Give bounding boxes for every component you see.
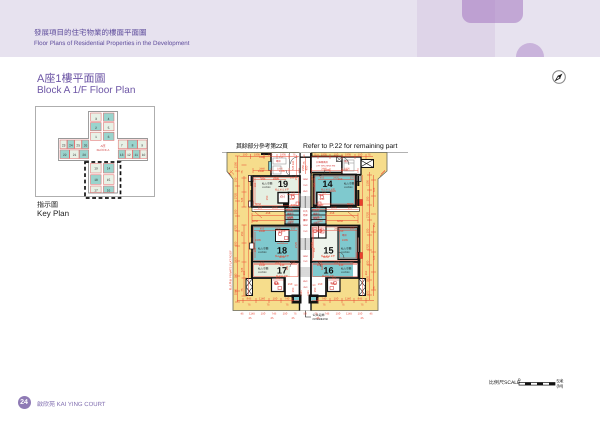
svg-text:458: 458 bbox=[330, 211, 335, 215]
svg-text:16: 16 bbox=[107, 189, 111, 193]
svg-text:150: 150 bbox=[313, 182, 316, 187]
svg-text:725: 725 bbox=[372, 255, 376, 260]
svg-text:浴室: 浴室 bbox=[330, 281, 335, 285]
svg-text:150: 150 bbox=[348, 207, 353, 210]
svg-text:725: 725 bbox=[372, 187, 376, 192]
svg-text:2725: 2725 bbox=[366, 275, 370, 282]
svg-text:150: 150 bbox=[366, 290, 370, 295]
svg-text:浴室: 浴室 bbox=[274, 281, 279, 285]
svg-text:LIV/DIN: LIV/DIN bbox=[344, 186, 353, 189]
svg-text:22: 22 bbox=[63, 153, 67, 157]
svg-text:電錶房: 電錶房 bbox=[313, 212, 320, 215]
svg-text:1: 1 bbox=[95, 135, 97, 139]
svg-text:LIV/DIN: LIV/DIN bbox=[262, 186, 271, 189]
svg-text:17: 17 bbox=[94, 189, 98, 193]
svg-text:150: 150 bbox=[303, 184, 308, 187]
svg-text:13: 13 bbox=[120, 153, 124, 157]
svg-text:1905: 1905 bbox=[345, 153, 352, 157]
svg-text:450: 450 bbox=[305, 165, 309, 170]
svg-text:電錶房: 電錶房 bbox=[287, 212, 294, 215]
svg-text:私人平台 PRIVATE FLAT ROOF: 私人平台 PRIVATE FLAT ROOF bbox=[229, 250, 233, 290]
svg-text:845: 845 bbox=[358, 297, 363, 301]
svg-text:455: 455 bbox=[260, 228, 265, 231]
svg-text:25: 25 bbox=[270, 316, 274, 320]
svg-text:1850: 1850 bbox=[303, 178, 309, 181]
svg-text:725: 725 bbox=[240, 197, 244, 202]
svg-text:(M): (M) bbox=[557, 384, 564, 389]
svg-text:8: 8 bbox=[132, 144, 134, 148]
svg-text:25: 25 bbox=[76, 144, 80, 148]
svg-text:150: 150 bbox=[294, 175, 298, 180]
svg-text:725: 725 bbox=[280, 241, 285, 244]
svg-text:75: 75 bbox=[302, 161, 306, 165]
svg-text:450: 450 bbox=[303, 286, 308, 289]
svg-text:740: 740 bbox=[285, 297, 290, 301]
svg-text:2725: 2725 bbox=[294, 241, 298, 248]
svg-text:25: 25 bbox=[360, 316, 364, 320]
svg-text:LIV/DIN: LIV/DIN bbox=[258, 251, 267, 254]
svg-text:150: 150 bbox=[254, 182, 257, 187]
svg-text:150: 150 bbox=[372, 222, 376, 227]
svg-text:458: 458 bbox=[266, 211, 271, 215]
svg-text:1905: 1905 bbox=[321, 153, 328, 157]
svg-text:150: 150 bbox=[261, 312, 266, 316]
svg-text:150: 150 bbox=[366, 196, 370, 201]
svg-text:走廊: 走廊 bbox=[303, 213, 308, 217]
svg-text:455: 455 bbox=[260, 177, 265, 180]
svg-text:Refer to P.22 for remaining pa: Refer to P.22 for remaining part bbox=[303, 143, 397, 150]
svg-text:2150: 2150 bbox=[366, 179, 370, 186]
svg-text:450: 450 bbox=[243, 270, 246, 275]
svg-text:25: 25 bbox=[291, 316, 295, 320]
svg-text:1905: 1905 bbox=[342, 238, 349, 242]
svg-text:1850: 1850 bbox=[303, 224, 309, 227]
svg-text:私1,452.8平: 私1,452.8平 bbox=[321, 254, 335, 258]
svg-text:75: 75 bbox=[313, 153, 317, 157]
svg-text:12: 12 bbox=[127, 153, 131, 157]
svg-text:75: 75 bbox=[247, 302, 251, 306]
svg-text:2725: 2725 bbox=[234, 224, 238, 231]
svg-text:1905: 1905 bbox=[272, 207, 278, 210]
svg-text:150: 150 bbox=[283, 312, 288, 316]
svg-text:2725: 2725 bbox=[366, 243, 370, 250]
svg-text:睡房: 睡房 bbox=[276, 159, 281, 163]
svg-text:升降機機房: 升降機機房 bbox=[316, 160, 329, 164]
svg-text:15: 15 bbox=[323, 246, 333, 256]
svg-text:2440: 2440 bbox=[321, 168, 327, 171]
svg-text:150: 150 bbox=[358, 153, 363, 157]
svg-text:26: 26 bbox=[84, 144, 88, 148]
svg-text:455: 455 bbox=[320, 177, 325, 180]
svg-text:1145: 1145 bbox=[346, 312, 352, 316]
svg-text:150: 150 bbox=[350, 177, 355, 180]
svg-text:2425: 2425 bbox=[334, 262, 340, 265]
svg-text:14: 14 bbox=[322, 179, 333, 189]
svg-text:BLOCK A: BLOCK A bbox=[97, 148, 110, 152]
svg-text:水錶房: 水錶房 bbox=[286, 215, 294, 219]
svg-text:455: 455 bbox=[260, 262, 265, 265]
svg-text:其餘部分參考第22頁: 其餘部分參考第22頁 bbox=[236, 142, 288, 150]
svg-text:150: 150 bbox=[350, 228, 355, 231]
svg-text:2425: 2425 bbox=[333, 177, 339, 180]
svg-text:450: 450 bbox=[365, 270, 368, 275]
svg-text:75: 75 bbox=[240, 288, 244, 292]
svg-text:150: 150 bbox=[288, 282, 293, 286]
svg-text:7: 7 bbox=[121, 144, 123, 148]
svg-text:1905: 1905 bbox=[277, 168, 283, 171]
svg-text:1140: 1140 bbox=[345, 297, 351, 301]
svg-text:20: 20 bbox=[82, 153, 86, 157]
svg-text:1145: 1145 bbox=[300, 290, 303, 296]
svg-text:150: 150 bbox=[279, 156, 284, 159]
svg-text:150: 150 bbox=[366, 228, 370, 233]
svg-text:150: 150 bbox=[313, 247, 316, 252]
svg-text:6: 6 bbox=[108, 135, 110, 139]
svg-text:75: 75 bbox=[360, 302, 364, 306]
svg-text:0: 0 bbox=[518, 378, 521, 383]
svg-text:5650: 5650 bbox=[252, 219, 259, 223]
svg-text:23: 23 bbox=[62, 144, 66, 148]
svg-text:2425: 2425 bbox=[334, 228, 340, 231]
svg-text:845: 845 bbox=[247, 297, 252, 301]
svg-text:2440: 2440 bbox=[259, 168, 265, 171]
svg-text:850: 850 bbox=[303, 190, 308, 193]
svg-text:浴室: 浴室 bbox=[290, 193, 295, 197]
svg-text:2: 2 bbox=[95, 126, 97, 130]
svg-text:浴室: 浴室 bbox=[319, 193, 324, 197]
svg-text:75: 75 bbox=[292, 153, 296, 157]
svg-text:1160: 1160 bbox=[288, 220, 294, 223]
svg-text:11: 11 bbox=[135, 153, 139, 157]
svg-text:150: 150 bbox=[303, 230, 308, 233]
svg-text:2425: 2425 bbox=[275, 262, 281, 265]
svg-text:455: 455 bbox=[318, 228, 323, 231]
svg-text:樓梯: 樓梯 bbox=[303, 218, 308, 222]
svg-text:25: 25 bbox=[248, 316, 252, 320]
svg-text:75: 75 bbox=[372, 286, 376, 290]
svg-text:940: 940 bbox=[290, 197, 295, 201]
svg-text:水錶房: 水錶房 bbox=[312, 215, 320, 219]
svg-text:LIV/DIN: LIV/DIN bbox=[258, 271, 267, 274]
svg-text:150: 150 bbox=[290, 177, 295, 180]
svg-text:75: 75 bbox=[341, 302, 345, 306]
svg-text:入口: 入口 bbox=[280, 195, 285, 198]
svg-text:45: 45 bbox=[240, 312, 244, 316]
svg-text:75: 75 bbox=[322, 302, 326, 306]
svg-text:公共: 公共 bbox=[303, 210, 308, 213]
svg-text:1980: 1980 bbox=[259, 156, 265, 159]
svg-text:150: 150 bbox=[366, 260, 370, 265]
svg-text:10: 10 bbox=[142, 153, 146, 157]
svg-text:1905: 1905 bbox=[331, 207, 337, 210]
svg-text:2725: 2725 bbox=[234, 192, 238, 199]
svg-text:私950.2平: 私950.2平 bbox=[276, 274, 288, 278]
svg-text:150: 150 bbox=[291, 228, 296, 231]
svg-text:940: 940 bbox=[292, 160, 295, 165]
svg-text:CORRIDOR: CORRIDOR bbox=[313, 317, 328, 321]
svg-text:私1,452.8平: 私1,452.8平 bbox=[321, 188, 335, 192]
svg-text:1905: 1905 bbox=[255, 238, 262, 242]
svg-text:18: 18 bbox=[277, 246, 287, 256]
svg-text:150: 150 bbox=[273, 297, 278, 301]
svg-text:1160: 1160 bbox=[317, 220, 323, 223]
svg-text:150: 150 bbox=[291, 287, 295, 292]
svg-text:150: 150 bbox=[313, 287, 317, 292]
svg-text:1980: 1980 bbox=[234, 288, 238, 295]
svg-text:3: 3 bbox=[95, 117, 97, 121]
svg-text:150: 150 bbox=[234, 177, 238, 182]
svg-text:電錶房: 電錶房 bbox=[312, 208, 320, 212]
svg-text:1145: 1145 bbox=[307, 290, 310, 296]
svg-text:21: 21 bbox=[73, 153, 77, 157]
svg-text:睡房: 睡房 bbox=[342, 233, 347, 237]
svg-text:2725: 2725 bbox=[234, 256, 238, 263]
svg-text:150: 150 bbox=[258, 207, 263, 210]
svg-text:15: 15 bbox=[107, 178, 111, 182]
svg-text:24: 24 bbox=[69, 144, 73, 148]
svg-text:150: 150 bbox=[240, 231, 244, 236]
svg-text:LIV/DIN: LIV/DIN bbox=[341, 271, 350, 274]
svg-text:14: 14 bbox=[107, 167, 111, 171]
svg-text:150: 150 bbox=[310, 175, 314, 180]
svg-text:150: 150 bbox=[334, 297, 339, 301]
svg-text:940: 940 bbox=[321, 265, 324, 270]
svg-text:50: 50 bbox=[303, 312, 307, 316]
svg-text:740: 740 bbox=[322, 297, 327, 301]
svg-text:150: 150 bbox=[265, 195, 269, 200]
svg-text:150: 150 bbox=[303, 260, 308, 263]
svg-text:電錶房: 電錶房 bbox=[286, 208, 294, 212]
svg-text:私950.2平: 私950.2平 bbox=[322, 274, 334, 278]
svg-text:25: 25 bbox=[316, 316, 320, 320]
svg-text:1850: 1850 bbox=[303, 255, 309, 258]
svg-text:5: 5 bbox=[108, 126, 110, 130]
svg-text:4: 4 bbox=[108, 117, 110, 121]
svg-text:150: 150 bbox=[268, 153, 273, 157]
svg-text:私1,452.8平: 私1,452.8平 bbox=[275, 254, 289, 258]
svg-text:1140: 1140 bbox=[259, 297, 265, 301]
svg-text:75: 75 bbox=[266, 302, 270, 306]
svg-text:150: 150 bbox=[318, 282, 323, 286]
svg-text:150: 150 bbox=[234, 273, 238, 278]
svg-text:25: 25 bbox=[338, 316, 342, 320]
svg-text:1905: 1905 bbox=[344, 168, 350, 171]
svg-text:2425: 2425 bbox=[273, 177, 279, 180]
svg-text:5650: 5650 bbox=[337, 219, 344, 223]
svg-text:2725: 2725 bbox=[366, 211, 370, 218]
svg-text:940: 940 bbox=[286, 265, 289, 270]
svg-text:75: 75 bbox=[240, 170, 244, 174]
svg-text:745: 745 bbox=[325, 312, 330, 316]
svg-text:浴室: 浴室 bbox=[278, 230, 283, 234]
svg-text:18: 18 bbox=[94, 178, 98, 182]
svg-text:850: 850 bbox=[303, 280, 308, 283]
svg-text:45: 45 bbox=[369, 312, 373, 316]
svg-text:150: 150 bbox=[243, 153, 248, 157]
svg-text:2150: 2150 bbox=[234, 161, 238, 168]
svg-text:75: 75 bbox=[285, 302, 289, 306]
svg-text:150: 150 bbox=[334, 153, 339, 157]
svg-text:私1,452.8平: 私1,452.8平 bbox=[275, 188, 289, 192]
svg-text:150: 150 bbox=[254, 247, 257, 252]
svg-text:19: 19 bbox=[278, 179, 288, 189]
svg-text:150: 150 bbox=[234, 209, 238, 214]
svg-text:75: 75 bbox=[367, 153, 371, 157]
svg-text:9: 9 bbox=[141, 144, 143, 148]
svg-text:LIV/DIN: LIV/DIN bbox=[341, 251, 350, 254]
svg-text:150: 150 bbox=[350, 262, 355, 265]
svg-text:19: 19 bbox=[94, 167, 98, 171]
svg-text:150: 150 bbox=[234, 241, 238, 246]
